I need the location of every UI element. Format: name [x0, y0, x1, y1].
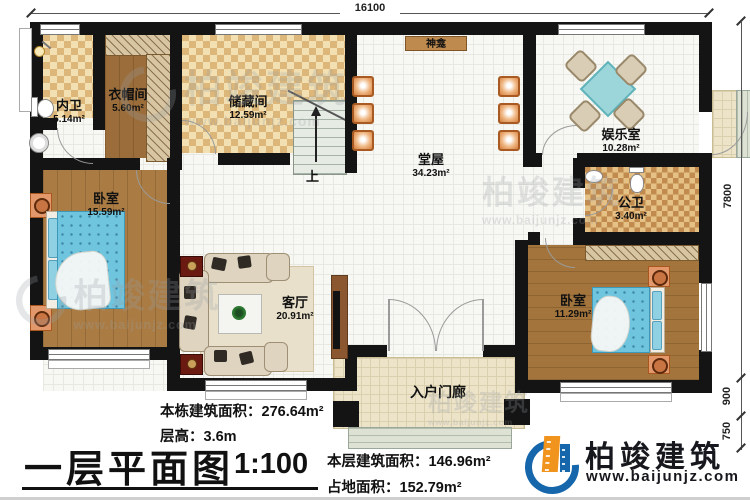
hall-chair: [498, 130, 520, 151]
window-bedroom-right-bottom: [560, 382, 672, 393]
wall-entertainment-bottom-b: [577, 153, 712, 167]
sill-living: [205, 391, 307, 400]
wall-entertainment-bottom-a: [528, 153, 542, 167]
sill-bedroom-left: [48, 360, 150, 369]
front-door-right-panel: [482, 299, 484, 351]
storage-floor-ext: [295, 34, 345, 102]
toilet-icon: [630, 174, 644, 193]
porch-column-left: [333, 401, 359, 427]
tv: [333, 291, 340, 349]
stat-building-total: 本栋建筑面积：276.64m²: [160, 400, 324, 421]
company-logo: 柏竣建筑 www.baijunjz.com: [523, 432, 750, 494]
plant: [232, 306, 246, 320]
logo-building-blue-icon: [560, 444, 570, 472]
entry-steps: [348, 427, 512, 449]
wall-right-a: [699, 22, 712, 112]
sofa-corner: [264, 342, 288, 372]
wall-front-b: [483, 345, 523, 357]
window-bedroom-left: [48, 349, 150, 360]
cloakroom-wardrobe-side: [146, 54, 172, 162]
dimension-right-7800: 7800: [722, 174, 734, 218]
stairs-up-label: 上: [306, 166, 319, 185]
nightstand-lamp: [34, 311, 50, 327]
window-inner-bath-top: [40, 24, 80, 35]
wall-bedroom-right-left: [515, 240, 528, 393]
end-table-knob: [187, 359, 197, 369]
floor-plan-canvas: 上 神龛: [0, 0, 750, 500]
porch-column-right: [504, 399, 530, 425]
shower-icon: [34, 46, 45, 57]
wall-cloakroom-right: [170, 22, 182, 170]
sill-bedroom-right: [560, 393, 672, 402]
logo-website: www.baijunjz.com: [586, 468, 739, 485]
sofa-pillow: [211, 257, 227, 272]
shrine: 神龛: [405, 36, 467, 51]
window-bedroom-right-side: [701, 283, 712, 352]
stair-arrow-line: [315, 116, 317, 162]
sofa-pillow: [184, 286, 196, 299]
cloakroom-wardrobe: [105, 34, 172, 56]
wall-right-c: [699, 350, 712, 393]
hall-chair: [352, 76, 374, 97]
hall-chair: [498, 103, 520, 124]
sofa: [179, 270, 209, 352]
toilet-icon: [629, 167, 644, 173]
dimension-right-900: 900: [721, 379, 733, 413]
hall-chair: [498, 76, 520, 97]
wall-right-b: [699, 155, 712, 283]
stat-floor-area: 本层建筑面积：146.96m²: [327, 450, 491, 471]
wall-public-bath-left-a: [573, 158, 585, 188]
dimension-line-right: [741, 22, 742, 450]
pillow: [652, 321, 662, 350]
sofa-pillow: [237, 255, 252, 269]
nightstand-lamp: [652, 358, 668, 374]
end-table-knob: [187, 261, 197, 271]
window-storage-top: [215, 24, 302, 35]
pillow: [652, 291, 662, 320]
dimension-top-value: 16100: [340, 2, 400, 14]
window-living: [205, 380, 307, 391]
title-underline: [22, 487, 318, 490]
wall-inner-bath-right: [93, 22, 105, 130]
sofa-pillow: [214, 350, 227, 362]
wall-hall-entertainment: [523, 22, 536, 167]
window-entertainment-top: [558, 24, 645, 35]
wall-inner-bath-bottom: [30, 118, 57, 130]
logo-building-orange-icon: [542, 436, 561, 472]
wall-public-bath-bottom: [573, 232, 712, 245]
sofa-corner: [266, 253, 290, 281]
stair-arrow-head: [311, 106, 321, 116]
page-title: 一层平面图: [24, 438, 234, 493]
wall-storage-bottom: [218, 153, 290, 165]
wall-public-bath-bottom-stub: [528, 232, 540, 245]
stat-land-area: 占地面积：152.79m²: [327, 476, 462, 497]
scale-label: 1:100: [234, 448, 308, 481]
hall-chair: [352, 103, 374, 124]
nightstand-lamp: [652, 270, 668, 286]
front-door-left-panel: [388, 299, 390, 351]
hall-chair: [352, 130, 374, 151]
entry-porch-floor: [333, 357, 525, 429]
sink-icon: [585, 170, 603, 183]
bedroom-right-wardrobe: [585, 245, 699, 261]
sink-icon: [29, 133, 49, 153]
toilet-icon: [37, 99, 54, 118]
sofa-pillow: [183, 315, 197, 330]
